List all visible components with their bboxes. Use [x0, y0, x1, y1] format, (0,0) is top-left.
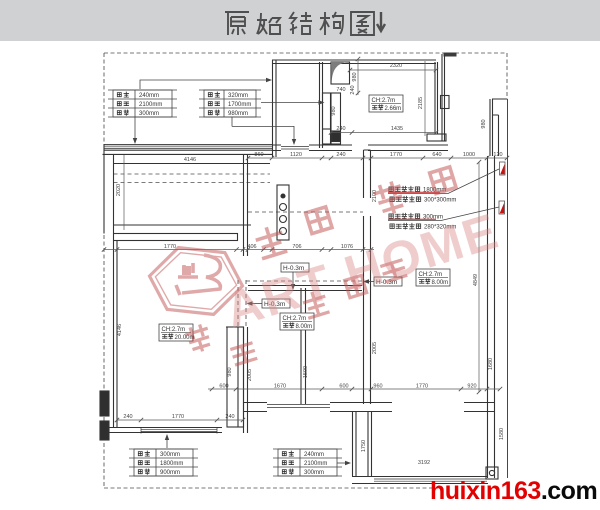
svg-text:1770: 1770 [416, 384, 428, 390]
svg-text:1120: 1120 [290, 152, 302, 158]
svg-text:1435: 1435 [391, 126, 403, 132]
svg-text:4146: 4146 [117, 324, 123, 336]
svg-text:2005: 2005 [247, 369, 253, 381]
svg-text:240mm: 240mm [304, 452, 324, 458]
svg-text:2.66m: 2.66m [385, 106, 402, 112]
svg-text:1700mm: 1700mm [228, 102, 251, 108]
svg-text:2100mm: 2100mm [139, 102, 162, 108]
svg-text:2100mm: 2100mm [304, 461, 327, 467]
svg-text:320mm: 320mm [228, 93, 248, 99]
svg-text:1580: 1580 [499, 428, 505, 440]
svg-text:860: 860 [254, 152, 263, 158]
svg-text:240mm: 240mm [139, 93, 159, 99]
svg-text:960: 960 [373, 384, 382, 390]
svg-text:640: 640 [432, 152, 441, 158]
svg-text:1770: 1770 [390, 152, 402, 158]
svg-text:740: 740 [336, 87, 345, 93]
svg-text:300mm: 300mm [160, 452, 180, 458]
svg-text:980: 980 [227, 367, 233, 376]
svg-text:huixin163.com: huixin163.com [430, 477, 597, 505]
svg-text:900mm: 900mm [160, 470, 180, 476]
svg-text:300*300mm: 300*300mm [424, 198, 456, 204]
svg-text:1770: 1770 [172, 414, 184, 420]
svg-text:240: 240 [336, 152, 345, 158]
svg-text:1000: 1000 [463, 152, 475, 158]
svg-text:240: 240 [350, 85, 356, 94]
svg-text:240: 240 [225, 414, 234, 420]
svg-text:240: 240 [123, 414, 132, 420]
svg-text:4849: 4849 [473, 274, 479, 286]
svg-text:1670: 1670 [274, 384, 286, 390]
svg-text:3192: 3192 [418, 460, 430, 466]
svg-text:1680: 1680 [488, 358, 494, 370]
svg-text:300mm: 300mm [304, 470, 324, 476]
svg-text:2185: 2185 [418, 97, 424, 109]
svg-text:980: 980 [331, 106, 337, 115]
svg-text:4146: 4146 [184, 157, 196, 163]
svg-text:240: 240 [336, 126, 345, 132]
svg-text:120: 120 [493, 152, 502, 158]
svg-text:600: 600 [339, 384, 348, 390]
svg-text:2020: 2020 [116, 184, 122, 196]
svg-text:300mm: 300mm [139, 111, 159, 117]
svg-text:2005: 2005 [372, 342, 378, 354]
svg-text:CH:2.7m: CH:2.7m [372, 98, 396, 104]
svg-text:1800mm: 1800mm [160, 461, 183, 467]
svg-text:2320: 2320 [390, 63, 402, 69]
svg-text:1750: 1750 [361, 440, 367, 452]
svg-text:8.00m: 8.00m [296, 324, 313, 330]
svg-text:600: 600 [219, 384, 228, 390]
svg-text:706: 706 [292, 244, 301, 250]
svg-text:1770: 1770 [164, 244, 176, 250]
svg-text:980mm: 980mm [228, 111, 248, 117]
svg-text:920: 920 [467, 384, 476, 390]
svg-text:980: 980 [352, 72, 358, 81]
svg-text:1500: 1500 [303, 366, 309, 378]
svg-text:CH:2.7m: CH:2.7m [162, 327, 186, 333]
svg-text:8.00m: 8.00m [432, 280, 449, 286]
svg-text:980: 980 [481, 119, 487, 128]
